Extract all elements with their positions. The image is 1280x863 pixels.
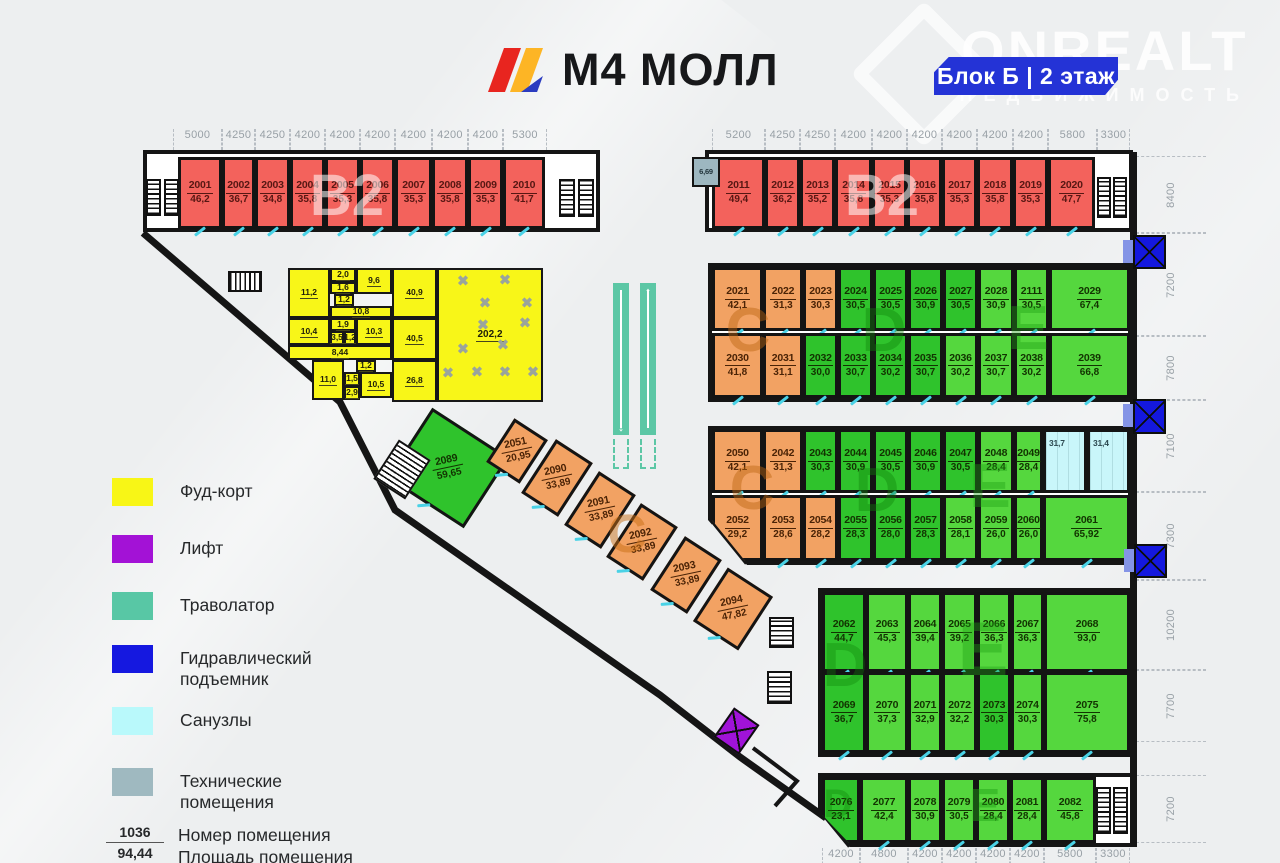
room-area: 30,5 [843, 299, 868, 312]
room-number: 2078 [914, 797, 937, 808]
block-floor-badge: Блок Б | 2 этаж [934, 57, 1118, 95]
foodcourt-area: 40,5 [405, 333, 424, 345]
stairs-icon [559, 179, 575, 217]
legend-swatch [112, 535, 153, 563]
room-area: 30,2 [948, 365, 973, 378]
legend-label: Гидравлический подъемник [180, 645, 312, 690]
room-area: 42,1 [725, 299, 750, 312]
room-number: 31,7 [1049, 439, 1065, 448]
room-2053: 205328,6 [763, 495, 803, 561]
dimension-label: 5800 [1048, 129, 1097, 150]
room-area: 30,5 [1019, 299, 1044, 312]
room-area: 30,9 [843, 461, 868, 474]
travolator-dash [640, 439, 656, 469]
stairs-icon [146, 179, 161, 216]
room-area: 28,4 [983, 461, 1008, 474]
room-area: 28,4 [980, 810, 1005, 823]
room-number: 2077 [873, 797, 896, 808]
room-2052: 205229,2 [712, 495, 763, 561]
room-area: 35,8 [912, 193, 937, 206]
foodcourt-cell: 26,8 [392, 360, 437, 402]
legend-label: Санузлы [180, 707, 252, 731]
room-area: 30,2 [1019, 365, 1044, 378]
room-area: 28,3 [913, 528, 938, 541]
hydraulic-lift-icon [1133, 399, 1166, 434]
room-number: 2006 [366, 180, 389, 191]
dimension-label: 5300 [503, 129, 547, 150]
room-2079: 207930,5 [942, 777, 976, 843]
room-area: 30,2 [878, 365, 903, 378]
room-area: 31,3 [770, 299, 795, 312]
room-number: 2001 [189, 180, 212, 191]
room-number: 2042 [772, 448, 795, 459]
room-2047: 204730,5 [943, 429, 978, 493]
room-area: 41,7 [511, 193, 536, 206]
room-number: 2002 [227, 180, 250, 191]
dimension-label: 4200 [872, 129, 907, 150]
room-area: 30,5 [948, 299, 973, 312]
room-2073: 207330,3 [977, 672, 1011, 753]
room-area: 29,2 [725, 528, 750, 541]
room-number: 2014 [842, 180, 865, 191]
room-2064: 206439,4 [908, 592, 942, 672]
room-area: 30,9 [983, 299, 1008, 312]
room-number: 2013 [806, 180, 829, 191]
room-2077: 207742,4 [860, 777, 908, 843]
dimension-label: 5200 [712, 129, 765, 150]
room-number: 31,4 [1093, 439, 1109, 448]
room-number: 2037 [985, 353, 1008, 364]
room-area: 36,3 [981, 632, 1006, 645]
foodcourt-cell: 1,2 [344, 331, 356, 345]
hydraulic-lift-icon [1133, 235, 1166, 269]
room-area: 30,9 [912, 810, 937, 823]
room-area: 28,2 [808, 528, 833, 541]
room-2007: 200735,3 [395, 157, 432, 229]
room-number: 2009 [474, 180, 497, 191]
foodcourt-area: 9,6 [367, 275, 381, 287]
room-number: 2071 [914, 700, 937, 711]
room-2050: 205042,1 [712, 429, 763, 493]
room-number: 2029 [1078, 286, 1101, 297]
dimension-label: 4200 [907, 129, 942, 150]
room-number: 2067 [1016, 619, 1039, 630]
elevator-icon [713, 707, 759, 754]
foodcourt-area: 3,5 [330, 332, 344, 344]
room-number: 2054 [809, 515, 832, 526]
room-2056: 205628,0 [873, 495, 908, 561]
room-number: 2019 [1019, 180, 1042, 191]
stairs-icon [767, 671, 792, 704]
room-number: 2004 [296, 180, 319, 191]
travolator-dash [613, 439, 629, 469]
room-area: 30,7 [843, 365, 868, 378]
room-area: 39,2 [947, 632, 972, 645]
room-2004: 200435,8 [290, 157, 325, 229]
room-area: 36,3 [1015, 632, 1040, 645]
room-2080: 208028,4 [976, 777, 1010, 843]
room-number: 2035 [914, 353, 937, 364]
room-number: 2045 [879, 448, 902, 459]
room-number: 2007 [402, 180, 425, 191]
foodcourt-area: 40,9 [405, 287, 424, 299]
room-number: 2046 [914, 448, 937, 459]
foodcourt-cell: 1,9 [330, 318, 356, 331]
room-number: 2048 [985, 448, 1008, 459]
mall-title: М4 МОЛЛ [562, 44, 779, 96]
room-2061: 206165,92 [1043, 495, 1130, 561]
m4-logo-icon [494, 46, 550, 94]
room-area: 26,0 [1016, 528, 1041, 541]
room-number: 2032 [809, 353, 832, 364]
room-2043: 204330,3 [803, 429, 838, 493]
dimension-label: 4200 [395, 129, 432, 150]
foodcourt-area: 2,9 [345, 387, 359, 399]
stairs-icon [1113, 787, 1128, 834]
room-number: 2017 [948, 180, 971, 191]
foodcourt-area: 1,5 [345, 373, 359, 385]
legend-swatch [112, 645, 153, 673]
wc-room: 31,7 [1043, 429, 1087, 493]
room-2034: 203430,2 [873, 333, 908, 398]
room-number: 2055 [844, 515, 867, 526]
room-2036: 203630,2 [943, 333, 978, 398]
room-area: 30,3 [981, 712, 1006, 725]
legend-item-3: Траволатор [112, 592, 274, 620]
foodcourt-area: 26,8 [405, 375, 424, 387]
dimension-label: 4200 [908, 848, 942, 863]
room-2005: 200535,3 [325, 157, 360, 229]
dimension-label: 4200 [468, 129, 503, 150]
foodcourt-area: 8,44 [331, 347, 350, 359]
sample-room-number: 1036 [106, 824, 164, 843]
room-number: 2075 [1076, 700, 1099, 711]
legend-label: Лифт [180, 535, 223, 559]
foodcourt-cell: 2,9 [344, 386, 360, 400]
room-number: 2058 [949, 515, 972, 526]
room-number: 2073 [983, 700, 1006, 711]
room-area: 28,1 [948, 528, 973, 541]
room-2029: 202967,4 [1049, 267, 1130, 331]
room-number: 2059 [985, 515, 1008, 526]
legend-swatch [112, 478, 153, 506]
room-2054: 205428,2 [803, 495, 838, 561]
room-2111: 211130,5 [1014, 267, 1049, 331]
dimension-label: 8400 [1136, 156, 1206, 233]
room-number: 2080 [982, 797, 1005, 808]
foodcourt-area: 1,2 [337, 294, 351, 306]
table-icon: ✖ [442, 365, 454, 382]
room-number: 2028 [985, 286, 1008, 297]
room-area: 30,9 [913, 461, 938, 474]
room-2038: 203830,2 [1014, 333, 1049, 398]
room-2035: 203530,7 [908, 333, 943, 398]
room-number: 2050 [726, 448, 749, 459]
room-2057: 205728,3 [908, 495, 943, 561]
room-2016: 201635,8 [907, 157, 942, 229]
wc-room: 31,4 [1087, 429, 1130, 493]
room-number: 2018 [984, 180, 1007, 191]
room-2012: 201236,2 [765, 157, 800, 229]
room-area: 42,4 [871, 810, 896, 823]
foodcourt-seating-area: 202,2 [437, 268, 543, 402]
dimension-label: 10200 [1136, 580, 1206, 670]
stairs-icon [164, 179, 179, 216]
stairs-icon [769, 617, 794, 648]
stairs-icon [1096, 787, 1111, 834]
room-area: 30,0 [808, 365, 833, 378]
room-area: 37,3 [874, 712, 899, 725]
room-area: 35,8 [365, 193, 390, 206]
floorplan-page: ONREALT НЕДВИЖИМОСТЬ М4 МОЛЛ Блок Б | 2 … [0, 0, 1280, 863]
foodcourt-cell: 1,6 [330, 282, 356, 294]
room-number: 2081 [1016, 797, 1039, 808]
room-number: 2026 [914, 286, 937, 297]
room-number: 2016 [913, 180, 936, 191]
room-area: 28,6 [770, 528, 795, 541]
lift-door [1123, 240, 1133, 263]
foodcourt-cell: 2,0 [330, 268, 356, 282]
room-number: 2076 [830, 797, 853, 808]
room-number: 2036 [949, 353, 972, 364]
dimension-label: 4200 [290, 129, 325, 150]
foodcourt-area: 10,3 [365, 326, 384, 338]
room-number: 2021 [726, 286, 749, 297]
legend-swatch [112, 707, 153, 735]
room-area: 35,3 [330, 193, 355, 206]
area-label: Площадь помещения [178, 846, 353, 863]
room-number: 2072 [948, 700, 971, 711]
room-number: 2111 [1021, 286, 1042, 297]
foodcourt-cell: 3,5 [330, 331, 344, 345]
legend-sample: 1036 94,44 Номер помещения Площадь помещ… [106, 824, 353, 863]
room-number: 2020 [1060, 180, 1083, 191]
room-number: 2023 [809, 286, 832, 297]
foodcourt-area: 10,5 [367, 379, 386, 391]
room-number: 2010 [513, 180, 536, 191]
room-2049: 204928,4 [1014, 429, 1043, 493]
room-2072: 207232,2 [942, 672, 977, 753]
room-area: 49,4 [726, 193, 751, 206]
table-icon: ✖ [499, 272, 511, 289]
room-area: 35,8 [841, 193, 866, 206]
dimension-label: 3300 [1097, 129, 1130, 150]
room-2032: 203230,0 [803, 333, 838, 398]
room-2033: 203330,7 [838, 333, 873, 398]
stairs-icon [1097, 177, 1111, 218]
room-number: 2070 [876, 700, 899, 711]
room-area: 35,3 [877, 193, 902, 206]
table-icon: ✖ [457, 341, 469, 358]
dimension-label: 4200 [835, 129, 872, 150]
room-area: 45,8 [1057, 810, 1082, 823]
foodcourt-cell: 1,2 [334, 294, 354, 306]
room-2048: 204828,4 [978, 429, 1014, 493]
room-number: 2003 [261, 180, 284, 191]
room-2009: 200935,3 [468, 157, 503, 229]
room-number: 2063 [876, 619, 899, 630]
room-2015: 201535,3 [872, 157, 907, 229]
room-area: 35,3 [947, 193, 972, 206]
legend-item-2: Лифт [112, 535, 223, 563]
room-area: 30,3 [808, 461, 833, 474]
sample-room-area: 94,44 [106, 843, 164, 861]
room-2023: 202330,3 [803, 267, 838, 331]
room-number: 2066 [983, 619, 1006, 630]
room-area: 36,7 [831, 712, 856, 725]
room-2055: 205528,3 [838, 495, 873, 561]
room-number: 2049 [1017, 448, 1040, 459]
room-area: 35,3 [1018, 193, 1043, 206]
room-area: 46,2 [187, 193, 212, 206]
table-icon: ✖ [457, 273, 469, 290]
room-number: 2064 [914, 619, 937, 630]
room-2060: 206026,0 [1014, 495, 1043, 561]
room-2003: 200334,8 [255, 157, 290, 229]
room-2030: 203041,8 [712, 333, 763, 398]
room-number: 2053 [772, 515, 795, 526]
room-2010: 201041,7 [503, 157, 545, 229]
room-area: 41,8 [725, 365, 750, 378]
room-number: 2024 [844, 286, 867, 297]
number-label: Номер помещения [178, 824, 353, 846]
foodcourt-area: 1,2 [343, 332, 357, 344]
room-number: 2030 [726, 353, 749, 364]
room-2069: 206936,7 [822, 672, 866, 753]
legend-label: Фуд-корт [180, 478, 252, 502]
room-2019: 201935,3 [1013, 157, 1048, 229]
room-number: 2038 [1020, 353, 1043, 364]
foodcourt-cell: 9,6 [356, 268, 392, 294]
room-area: 30,3 [808, 299, 833, 312]
foodcourt-cell: 8,44 [288, 345, 392, 360]
room-number: 2012 [771, 180, 794, 191]
room-number: 2043 [809, 448, 832, 459]
room-area: 35,3 [473, 193, 498, 206]
room-area: 75,8 [1074, 712, 1099, 725]
room-number: 2027 [949, 286, 972, 297]
legend-item-4: Гидравлический подъемник [112, 645, 312, 690]
room-number: 2068 [1076, 619, 1099, 630]
room-area: 47,7 [1059, 193, 1084, 206]
room-number: 2034 [879, 353, 902, 364]
room-number: 2065 [948, 619, 971, 630]
room-2063: 206345,3 [866, 592, 908, 672]
room-number: 2015 [878, 180, 901, 191]
room-2042: 204231,3 [763, 429, 803, 493]
room-area: 30,7 [913, 365, 938, 378]
table-icon: ✖ [497, 337, 509, 354]
room-2039: 203966,8 [1049, 333, 1130, 398]
foodcourt-cell: 40,9 [392, 268, 437, 318]
room-2075: 207575,8 [1044, 672, 1130, 753]
room-area: 30,5 [878, 299, 903, 312]
room-2001: 200146,2 [178, 157, 222, 229]
foodcourt-cell: 10,8 [330, 306, 392, 318]
dimension-label: 7800 [1136, 336, 1206, 400]
room-2062: 206244,7 [822, 592, 866, 672]
room-2021: 202142,1 [712, 267, 763, 331]
foodcourt-area: 1,6 [336, 282, 350, 294]
room-area: 39,4 [912, 632, 937, 645]
room-number: 2069 [833, 700, 856, 711]
room-2026: 202630,9 [908, 267, 943, 331]
foodcourt-cell: 10,3 [356, 318, 392, 345]
room-area: 36,2 [770, 193, 795, 206]
room-area: 31,1 [770, 365, 795, 378]
foodcourt-area: 10,8 [352, 306, 371, 318]
foodcourt-area: 2,0 [336, 269, 350, 281]
foodcourt-area: 10,4 [300, 326, 319, 338]
dimension-label: 4200 [977, 129, 1013, 150]
room-number: 2056 [879, 515, 902, 526]
legend-label: Траволатор [180, 592, 274, 616]
room-2067: 206736,3 [1011, 592, 1044, 672]
room-number: 2022 [772, 286, 795, 297]
room-area: 28,4 [1014, 810, 1039, 823]
dimension-label: 4200 [1013, 129, 1048, 150]
room-number: 2057 [914, 515, 937, 526]
room-2066: 206636,3 [977, 592, 1011, 672]
room-area: 31,3 [770, 461, 795, 474]
room-number: 2039 [1078, 353, 1101, 364]
dimension-label: 4250 [765, 129, 800, 150]
room-number: 2005 [331, 180, 354, 191]
room-area: 35,8 [982, 193, 1007, 206]
table-icon: ✖ [477, 317, 489, 334]
foodcourt-cell: 40,5 [392, 318, 437, 360]
dimension-label: 5000 [173, 129, 222, 150]
dimension-label: 4200 [976, 848, 1010, 863]
room-2002: 200236,7 [222, 157, 255, 229]
room-number: 2061 [1075, 515, 1098, 526]
room-area: 30,5 [946, 810, 971, 823]
foodcourt-cell: 11,2 [288, 268, 330, 318]
room-area: 32,2 [947, 712, 972, 725]
dimension-label: 4200 [942, 848, 976, 863]
table-icon: ✖ [521, 295, 533, 312]
room-2006: 200635,8 [360, 157, 395, 229]
room-2070: 207037,3 [866, 672, 908, 753]
room-area: 28,3 [843, 528, 868, 541]
stairs-icon [228, 271, 262, 292]
room-area: 32,9 [912, 712, 937, 725]
table-icon: ✖ [471, 364, 483, 381]
legend-item-5: Санузлы [112, 707, 252, 735]
foodcourt-area: 11,0 [319, 374, 337, 386]
room-number: 2062 [833, 619, 856, 630]
room-area: 44,7 [831, 632, 856, 645]
foodcourt-cell: 10,5 [360, 372, 392, 398]
room-2068: 206893,0 [1044, 592, 1130, 672]
table-icon: ✖ [499, 364, 511, 381]
room-2074: 207430,3 [1011, 672, 1044, 753]
dimension-label: 4250 [222, 129, 255, 150]
room-area: 45,3 [874, 632, 899, 645]
lift-door [1124, 549, 1134, 572]
dimension-label: 4200 [942, 129, 977, 150]
table-icon: ✖ [527, 364, 539, 381]
travolator-icon: ↑ [640, 283, 656, 435]
dimension-label: 4250 [255, 129, 290, 150]
room-2058: 205828,1 [943, 495, 978, 561]
dimension-label: 5800 [1044, 848, 1096, 863]
dimension-label: 4200 [1010, 848, 1044, 863]
foodcourt-cell: 1,2 [356, 360, 376, 372]
room-2045: 204530,5 [873, 429, 908, 493]
dimension-label: 3300 [1096, 848, 1130, 863]
foodcourt-area: 1,9 [336, 319, 350, 331]
